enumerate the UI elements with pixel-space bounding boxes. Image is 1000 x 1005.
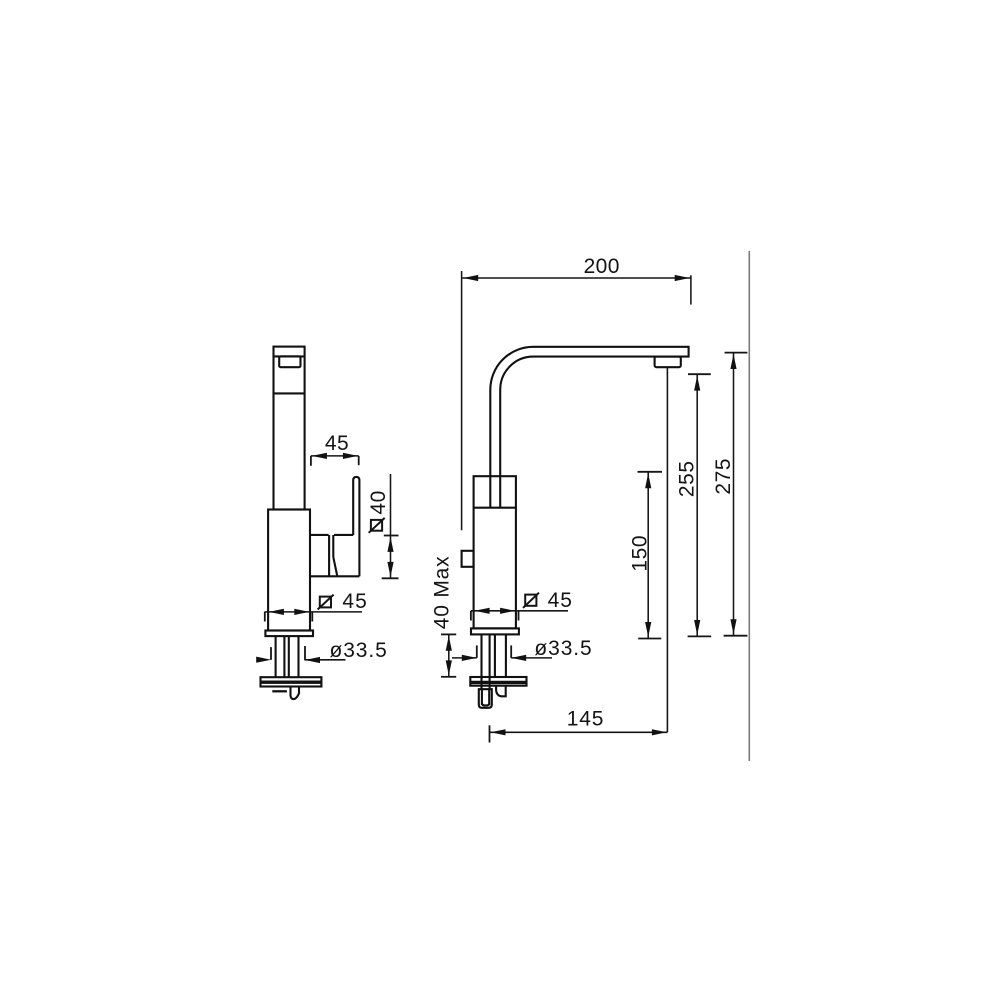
svg-text:275: 275 <box>712 458 735 495</box>
svg-text:40 Max: 40 Max <box>430 556 453 630</box>
svg-text:45: 45 <box>342 590 367 613</box>
svg-text:200: 200 <box>584 255 620 278</box>
svg-text:ø33.5: ø33.5 <box>330 639 388 662</box>
svg-text:150: 150 <box>628 535 651 572</box>
svg-text:45: 45 <box>548 589 573 612</box>
svg-text:40: 40 <box>367 490 390 515</box>
svg-text:ø33.5: ø33.5 <box>534 637 592 660</box>
svg-text:45: 45 <box>325 432 349 455</box>
svg-text:255: 255 <box>676 460 699 497</box>
svg-text:145: 145 <box>567 707 604 730</box>
